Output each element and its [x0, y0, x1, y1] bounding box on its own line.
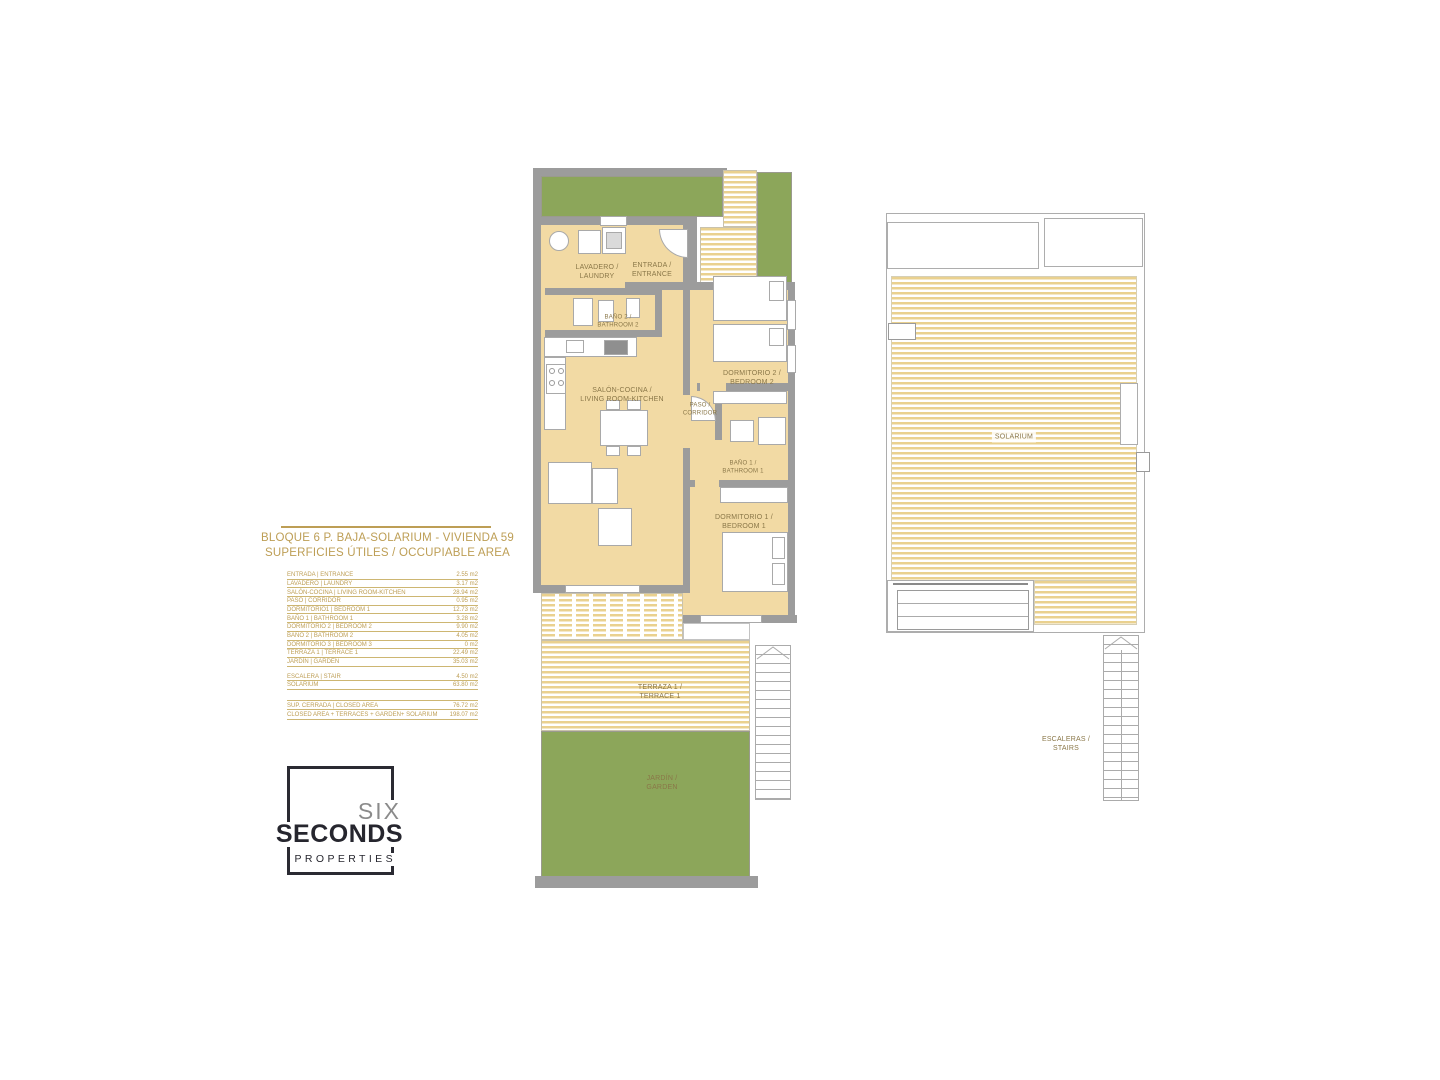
wall [535, 876, 758, 888]
wall [683, 448, 690, 593]
front-garden-strip [541, 176, 723, 217]
burner-icon [549, 368, 555, 374]
chair [606, 446, 620, 456]
table-row: ENTRADA | ENTRANCE2.55 m2 [287, 571, 478, 580]
armchair [592, 468, 618, 504]
table-total-row: SUP. CERRADA | CLOSED AREA76.72 m2 [287, 701, 478, 710]
table-row: SOLARIUM63.80 m2 [287, 681, 478, 690]
table-row: BAÑO 1 | BATHROOM 13.28 m2 [287, 614, 478, 623]
terrace-staircase [755, 645, 791, 800]
table-total-row: CLOSED AREA + TERRACES + GARDEN+ SOLARIU… [287, 710, 478, 719]
lounger-slat [898, 603, 1028, 604]
parapet-line [893, 583, 1028, 585]
wall [788, 290, 795, 623]
solarium-deck [891, 276, 1137, 581]
chair [627, 446, 641, 456]
dining-table [600, 410, 648, 446]
room-label-bedroom1: DORMITORIO 1 / BEDROOM 1 [715, 513, 773, 531]
table-row: DORMITORIO 2 | BEDROOM 29.90 m2 [287, 623, 478, 632]
window [787, 345, 796, 373]
washer-icon [549, 231, 569, 251]
page-title: BLOQUE 6 P. BAJA-SOLARIUM - VIVIENDA 59 [240, 531, 535, 546]
window [700, 615, 762, 623]
table-row: PASO | CORRIDOR0.95 m2 [287, 597, 478, 606]
wall [545, 330, 662, 337]
room-label-corridor: PASO / CORRIDOR [683, 403, 717, 418]
wall [625, 282, 690, 290]
shower [758, 417, 786, 445]
roof-void [1044, 218, 1143, 267]
room-label-laundry: LAVADERO / LAUNDRY [576, 263, 619, 281]
window [565, 585, 640, 593]
exterior-unit [1136, 452, 1150, 472]
sofa [548, 462, 592, 504]
table-row: LAVADERO | LAUNDRY3.17 m2 [287, 580, 478, 589]
room-label-living: SALÓN-COCINA / LIVING ROOM-KITCHEN [580, 386, 664, 404]
logo-six: SIX [354, 800, 401, 822]
table-row: DORMITORIO1 | BEDROOM 112.73 m2 [287, 606, 478, 615]
burner-icon [558, 380, 564, 386]
side-table [598, 508, 632, 546]
wall [533, 176, 541, 593]
lounger-slat [898, 616, 1028, 617]
page-subtitle: SUPERFICIES ÚTILES / OCCUPIABLE AREA [240, 546, 535, 561]
side-garden-strip [757, 172, 792, 290]
room-label-bedroom2: DORMITORIO 2 / BEDROOM 2 [723, 369, 781, 387]
room-label-bathroom1: BAÑO 1 / BATHROOM 1 [722, 461, 763, 476]
room-label-garden: JARDÍN / GARDEN [646, 774, 677, 792]
wall [533, 168, 727, 176]
room-label-entrance: ENTRADA / ENTRANCE [632, 261, 672, 279]
wall [690, 217, 697, 285]
terrace-dashed-zone [541, 593, 683, 640]
pillow [769, 328, 784, 346]
stairs-direction-chevron [756, 646, 790, 660]
room-label-solarium: SOLARIUM [992, 432, 1036, 443]
plan-title-block: BLOQUE 6 P. BAJA-SOLARIUM - VIVIENDA 59 … [240, 531, 535, 561]
sink [730, 420, 754, 442]
table-row: JARDÍN | GARDEN35.03 m2 [287, 658, 478, 667]
roof-void [887, 222, 1039, 269]
pillow [772, 537, 785, 559]
logo-seconds: SECONDS [273, 822, 403, 847]
room-label-stairs: ESCALERAS / STAIRS [1042, 735, 1090, 753]
fridge-inner [606, 232, 622, 249]
window [600, 216, 627, 226]
areas-table: ENTRADA | ENTRANCE2.55 m2 LAVADERO | LAU… [287, 571, 478, 720]
table-row: DORMITORIO 3 | BEDROOM 30 m2 [287, 641, 478, 650]
table-row: TERRAZA 1 | TERRACE 122.49 m2 [287, 649, 478, 658]
sun-lounger [897, 590, 1029, 630]
access-path [723, 170, 757, 227]
garden [541, 731, 750, 878]
pillow [769, 281, 784, 301]
wall-niche [1120, 383, 1138, 445]
window [787, 300, 796, 330]
room-label-bathroom2: BAÑO 2 / BATHROOM 2 [597, 315, 638, 330]
solarium-deck-lower [1034, 581, 1137, 625]
stairs-direction-chevron [1104, 636, 1138, 650]
table-row: ESCALERA | STAIR4.50 m2 [287, 673, 478, 682]
laundry-counter [578, 230, 601, 254]
six-seconds-logo: SIX SECONDS PROPERTIES [287, 766, 394, 875]
entrance-porch [700, 227, 757, 283]
shower [573, 298, 593, 326]
stairs-center-line [1121, 650, 1122, 800]
burner-icon [549, 380, 555, 386]
table-row: BAÑO 2 | BATHROOM 24.05 m2 [287, 632, 478, 641]
wardrobe [720, 487, 788, 503]
pillow [772, 563, 785, 585]
oven [604, 340, 628, 355]
kitchen-sink [566, 340, 584, 353]
planter [888, 323, 916, 340]
terrace-landing [683, 623, 750, 640]
floorplan-sheet: BLOQUE 6 P. BAJA-SOLARIUM - VIVIENDA 59 … [0, 0, 1440, 1080]
door-opening [695, 480, 719, 487]
room-label-terrace: TERRAZA 1 / TERRACE 1 [638, 683, 682, 701]
logo-properties: PROPERTIES [293, 853, 399, 866]
table-row: SALÓN-COCINA | LIVING ROOM-KITCHEN28.94 … [287, 588, 478, 597]
wardrobe [713, 391, 787, 404]
burner-icon [558, 368, 564, 374]
solarium-staircase [1103, 635, 1139, 801]
title-rule [281, 526, 491, 528]
table-totals: SUP. CERRADA | CLOSED AREA76.72 m2 CLOSE… [287, 700, 478, 720]
